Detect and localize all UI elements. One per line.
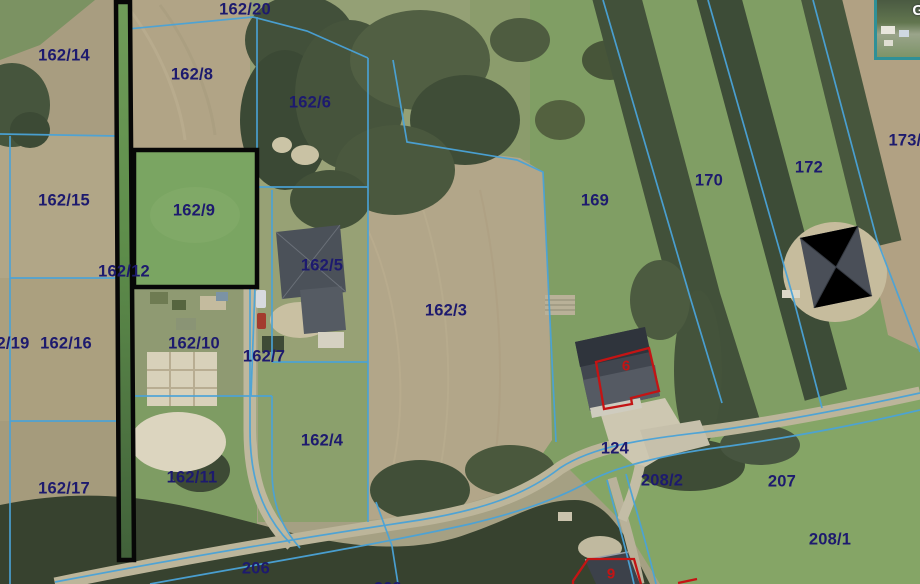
- building-number-9: 9: [607, 566, 615, 583]
- parcel-label-162-14: 162/14: [38, 47, 90, 66]
- parcel-label-170: 170: [695, 172, 723, 191]
- parcel-label-169: 169: [581, 192, 609, 211]
- parcel-label-162-19-partial: 2/19: [0, 335, 29, 354]
- inset-building-shape: [899, 30, 909, 37]
- parcel-label-162-5: 162/5: [301, 257, 343, 276]
- parcel-label-162-3: 162/3: [425, 302, 467, 321]
- parcel-label-162-12: 162/12: [98, 263, 150, 282]
- parcel-label-162-4: 162/4: [301, 432, 343, 451]
- parcel-label-124: 124: [601, 440, 629, 459]
- g-logo-glyph: G: [912, 2, 920, 19]
- parcel-label-162-9: 162/9: [173, 202, 215, 221]
- parcel-label-162-17: 162/17: [38, 480, 90, 499]
- parcel-label-162-10: 162/10: [168, 335, 220, 354]
- overview-inset[interactable]: G: [874, 0, 920, 60]
- parcel-label-162-20: 162/20: [219, 1, 271, 20]
- parcel-label-206: 206: [242, 560, 270, 579]
- parcel-label-162-16: 162/16: [40, 335, 92, 354]
- parcel-label-209-partial: 209: [374, 580, 402, 584]
- parcel-label-172: 172: [795, 159, 823, 178]
- parcel-label-208-2: 208/2: [641, 472, 683, 491]
- parcel-label-162-8: 162/8: [171, 66, 213, 85]
- parcel-label-162-11: 162/11: [167, 469, 218, 488]
- parcel-label-162-7: 162/7: [243, 348, 285, 367]
- parcel-label-162-15: 162/15: [38, 192, 90, 211]
- inset-building-shape: [884, 40, 893, 46]
- map-canvas[interactable]: 162/14 162/8 162/20 162/6 162/15 162/9 1…: [0, 0, 920, 584]
- parcel-label-208-1: 208/1: [809, 531, 851, 550]
- aerial-imagery: [0, 0, 920, 584]
- building-number-6: 6: [622, 358, 630, 375]
- parcel-label-173-partial: 173/: [889, 132, 920, 151]
- parcel-label-162-6: 162/6: [289, 94, 331, 113]
- inset-building-shape: [881, 26, 895, 34]
- parcel-label-207: 207: [768, 473, 796, 492]
